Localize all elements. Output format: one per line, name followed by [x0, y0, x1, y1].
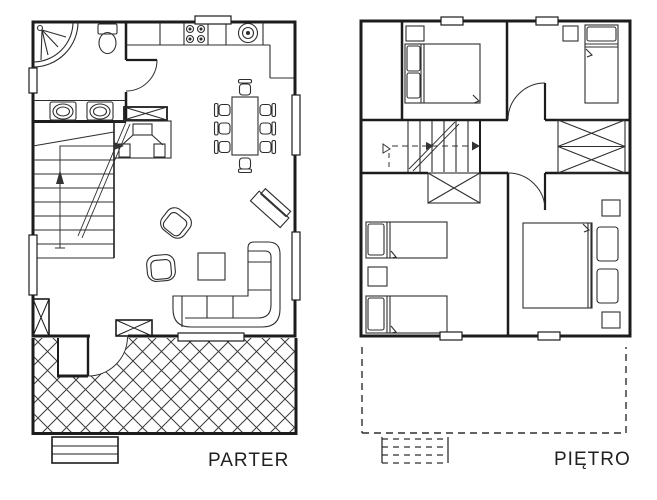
living-room: [146, 187, 293, 327]
nightstand: [602, 200, 620, 216]
double-bed: [405, 44, 480, 103]
corner-sofa: [173, 242, 280, 327]
window: [536, 17, 558, 25]
interior-walls: [33, 22, 126, 258]
nightstand: [602, 312, 620, 328]
nightstand: [563, 26, 578, 41]
double-bed: [523, 223, 618, 308]
windows: [29, 16, 300, 341]
window: [29, 68, 37, 93]
exterior-walls: [33, 22, 295, 336]
coffee-table: [198, 253, 225, 280]
window: [195, 16, 231, 24]
corner-shower: [33, 22, 78, 67]
washbasin-counter: [33, 101, 126, 121]
pietro-label: PIĘTRO: [554, 449, 631, 471]
fireplace: [114, 107, 171, 158]
staircase: [33, 122, 130, 258]
entry-steps: [52, 437, 118, 463]
bedroom-bottom-left: [366, 222, 447, 333]
tv-stand: [250, 187, 292, 228]
chimney-flue-box: [33, 299, 152, 336]
dining-table: [232, 97, 258, 155]
interior-walls: [361, 21, 630, 336]
window: [538, 332, 560, 340]
single-bed: [585, 25, 618, 103]
terrace: [33, 337, 296, 434]
built-in-wardrobe: [558, 120, 625, 173]
toilet: [98, 24, 117, 54]
roof-terrace-dashed: [362, 347, 626, 433]
nightstand: [368, 267, 387, 286]
parter-plan: [29, 16, 300, 463]
under-stair-wardrobe: [428, 173, 480, 203]
windows: [440, 17, 560, 340]
parter-label: PARTER: [208, 450, 289, 472]
bedroom-door: [508, 83, 545, 120]
pietro-plan: [361, 17, 630, 463]
bedroom-bottom-right: [523, 200, 620, 328]
kitchen-counter: [126, 22, 294, 78]
staircase: [383, 121, 480, 172]
nightstand: [406, 26, 424, 41]
stove: [187, 26, 205, 43]
bathroom-door: [126, 60, 157, 91]
window: [440, 332, 462, 340]
window: [178, 333, 244, 341]
kitchen-sink: [239, 24, 258, 43]
window: [29, 235, 37, 295]
bedroom-door: [508, 173, 545, 210]
bedroom-top-right: [563, 25, 618, 103]
single-bed: [366, 222, 447, 258]
dining-set: [215, 80, 276, 173]
window: [292, 95, 300, 155]
washbasin: [50, 102, 76, 120]
bedroom-top-left: [405, 26, 480, 103]
steps-dashed: [382, 437, 448, 463]
washbasin: [87, 102, 113, 120]
armchair: [157, 204, 195, 242]
dining-chairs: [215, 80, 276, 173]
floor-plan-drawing: PARTER PIĘTRO: [0, 0, 657, 500]
floor-plans-canvas: [0, 0, 657, 500]
window: [292, 232, 300, 300]
single-bed: [366, 296, 447, 333]
armchair: [146, 254, 176, 282]
window: [441, 17, 463, 25]
